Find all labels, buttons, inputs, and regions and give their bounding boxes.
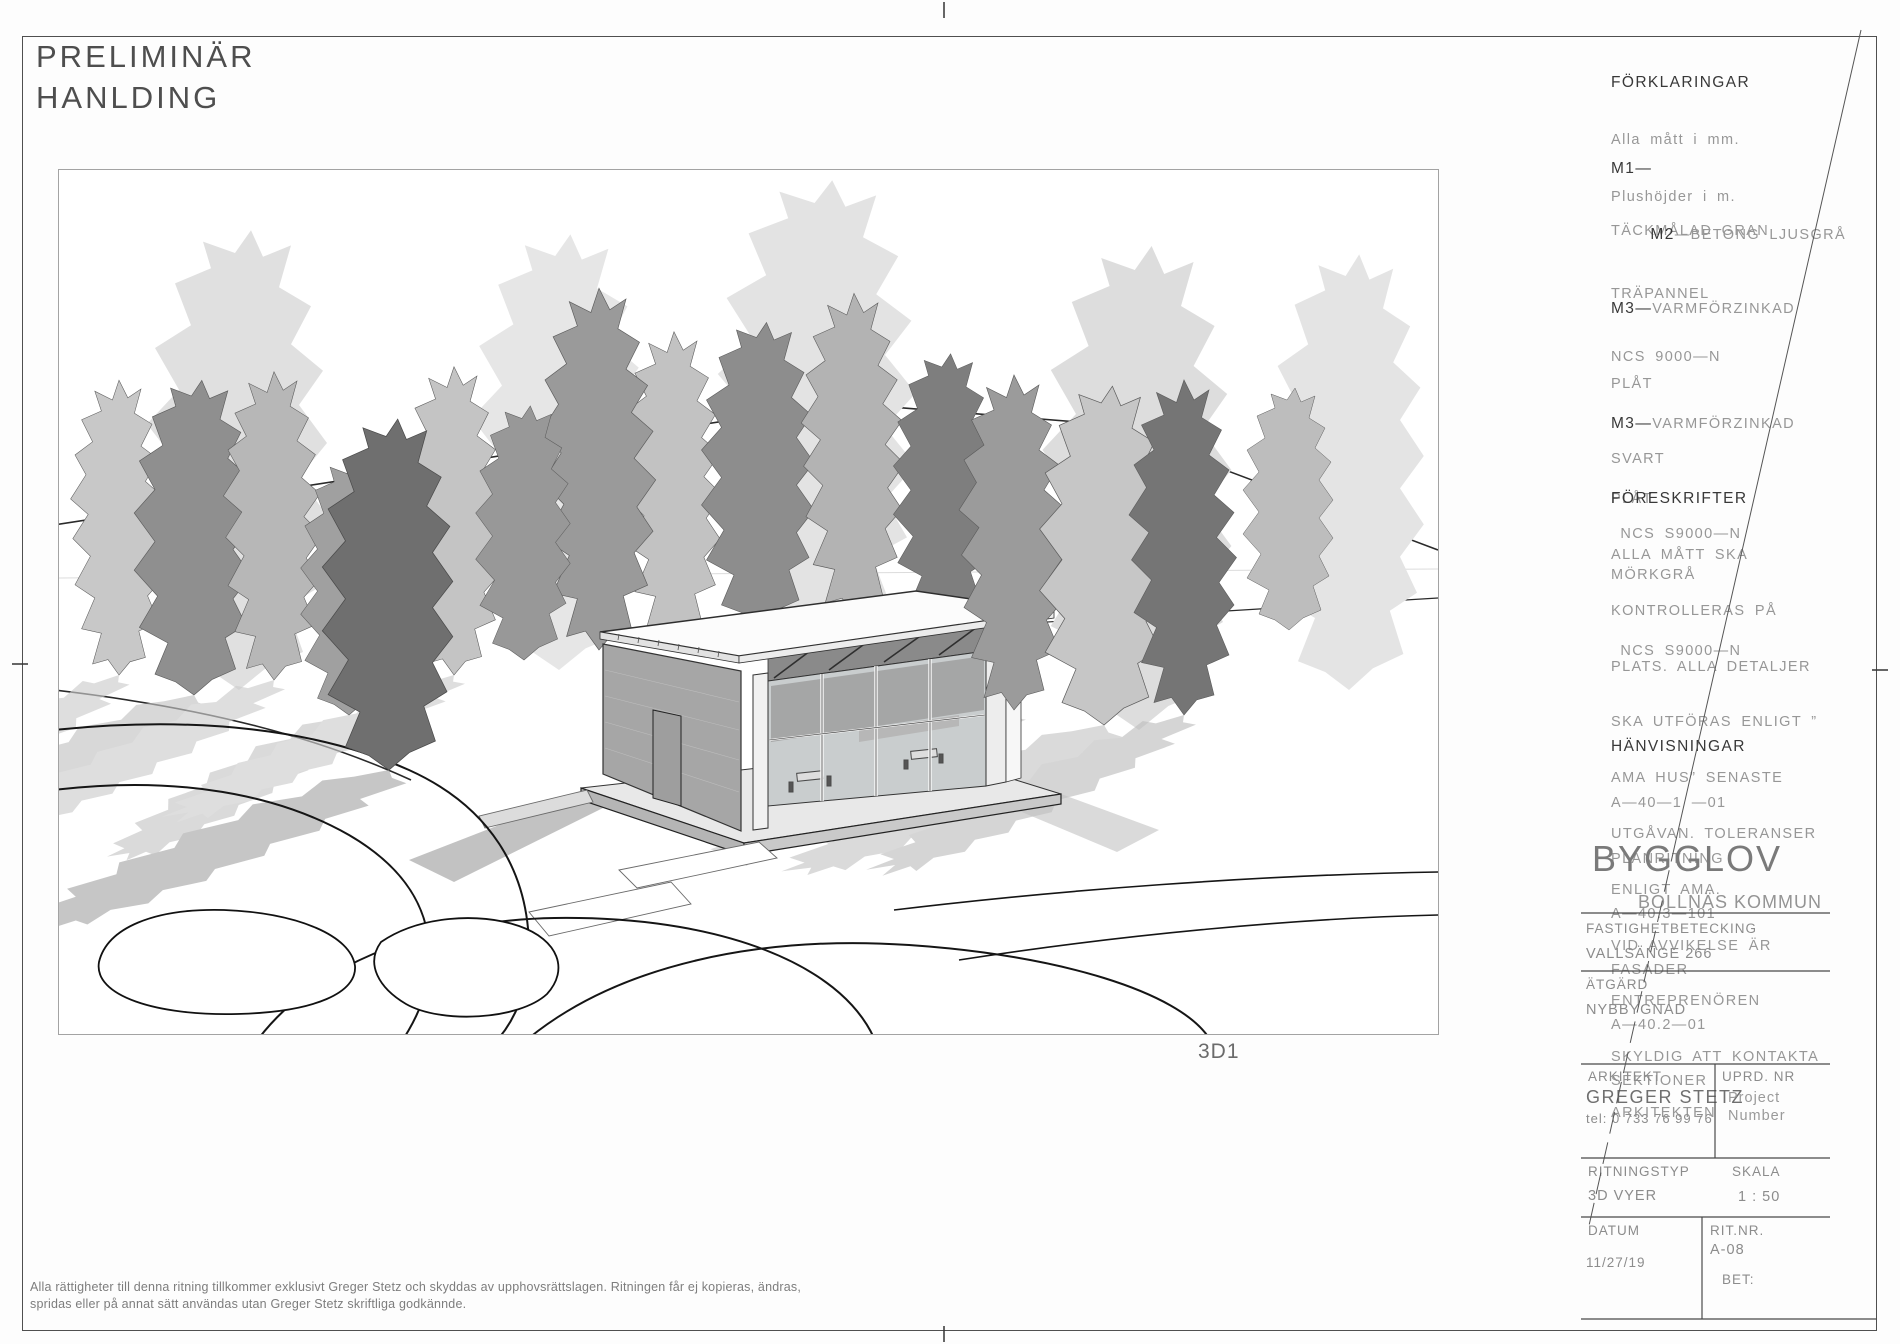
foreground-blobs (99, 910, 559, 1017)
scale-value: 1 : 50 (1738, 1189, 1780, 1205)
viewport-label: 3D1 (1198, 1040, 1240, 1064)
drawing-type-label: RITNINGSTYP (1588, 1164, 1690, 1179)
notes-hanvisningar: HÄNVISNINGAR A—40—1 —01 PLANRITNING A—40… (1611, 700, 1871, 1127)
site-3d-view (59, 170, 1438, 1034)
architect-label: ARKITEKT (1588, 1069, 1662, 1084)
stamp-line1: PRELIMINÄR (36, 36, 255, 77)
copyright-line1: Alla rättigheter till denna ritning till… (30, 1279, 801, 1296)
uprd-value-line1: Project (1728, 1090, 1780, 1106)
door (653, 710, 681, 806)
notes-title: FÖRESKRIFTER (1611, 488, 1871, 510)
drawing-no-label: RIT.NR. (1710, 1223, 1764, 1238)
material-code: M3— (1611, 415, 1652, 432)
property-value: VALLSÄNGE 266 (1586, 946, 1712, 962)
action-label: ÄTGÄRD (1586, 977, 1648, 992)
material-code: M2 (1650, 226, 1674, 243)
notes-title: HÄNVISNINGAR (1611, 736, 1871, 758)
titleblock-stamp-title: BYGGLOV (1592, 838, 1782, 880)
footer-copyright: Alla rättigheter till denna ritning till… (30, 1279, 801, 1313)
action-value: NYBBYGNAD (1586, 1002, 1686, 1018)
drawing-type-value: 3D VYER (1588, 1188, 1657, 1204)
revision-label: BET: (1722, 1272, 1755, 1287)
material-code: M3— (1611, 300, 1652, 317)
stamp-line2: HANLDING (36, 77, 255, 118)
drawing-viewport (58, 169, 1439, 1035)
property-label: FASTIGHETBETECKING (1586, 921, 1757, 936)
legend-line: VARMFÖRZINKAD (1652, 301, 1795, 317)
titleblock-municipality: BOLLNÄS KOMMUN (1638, 892, 1822, 913)
legend-title: FÖRKLARINGAR (1611, 72, 1871, 94)
notes-line: PLATS. ALLA DETALJER (1611, 658, 1871, 678)
architect-name: GREGER STETZ (1586, 1087, 1744, 1108)
notes-line: KONTROLLERAS PÅ (1611, 602, 1871, 622)
notes-line: ALLA MÅTT SKA (1611, 546, 1871, 566)
reference-line: A—40.2—01 (1611, 1016, 1871, 1036)
pillar-left (753, 673, 768, 830)
stamp-preliminar: PRELIMINÄR HANLDING (36, 36, 255, 118)
copyright-line2: spridas eller på annat sätt användas uta… (30, 1296, 801, 1313)
scale-label: SKALA (1732, 1164, 1781, 1179)
reference-line: A—40—1 —01 (1611, 794, 1871, 814)
reference-line: FASADER (1611, 961, 1871, 981)
architect-tel: tel: 0 733 76 99 76 (1586, 1111, 1713, 1126)
legend-line: VARMFÖRZINKAD (1652, 416, 1795, 432)
drawing-no-value: A-08 (1710, 1242, 1745, 1258)
uprd-label: UPRD. NR (1722, 1069, 1795, 1084)
material-code: M1— (1611, 160, 1652, 177)
date-label: DATUM (1588, 1223, 1640, 1238)
drawing-sheet: PRELIMINÄR HANLDING (0, 0, 1900, 1344)
date-value: 11/27/19 (1586, 1255, 1646, 1270)
uprd-value-line2: Number (1728, 1108, 1786, 1124)
legend-line: —BETONG LJUSGRÅ (1675, 227, 1846, 243)
